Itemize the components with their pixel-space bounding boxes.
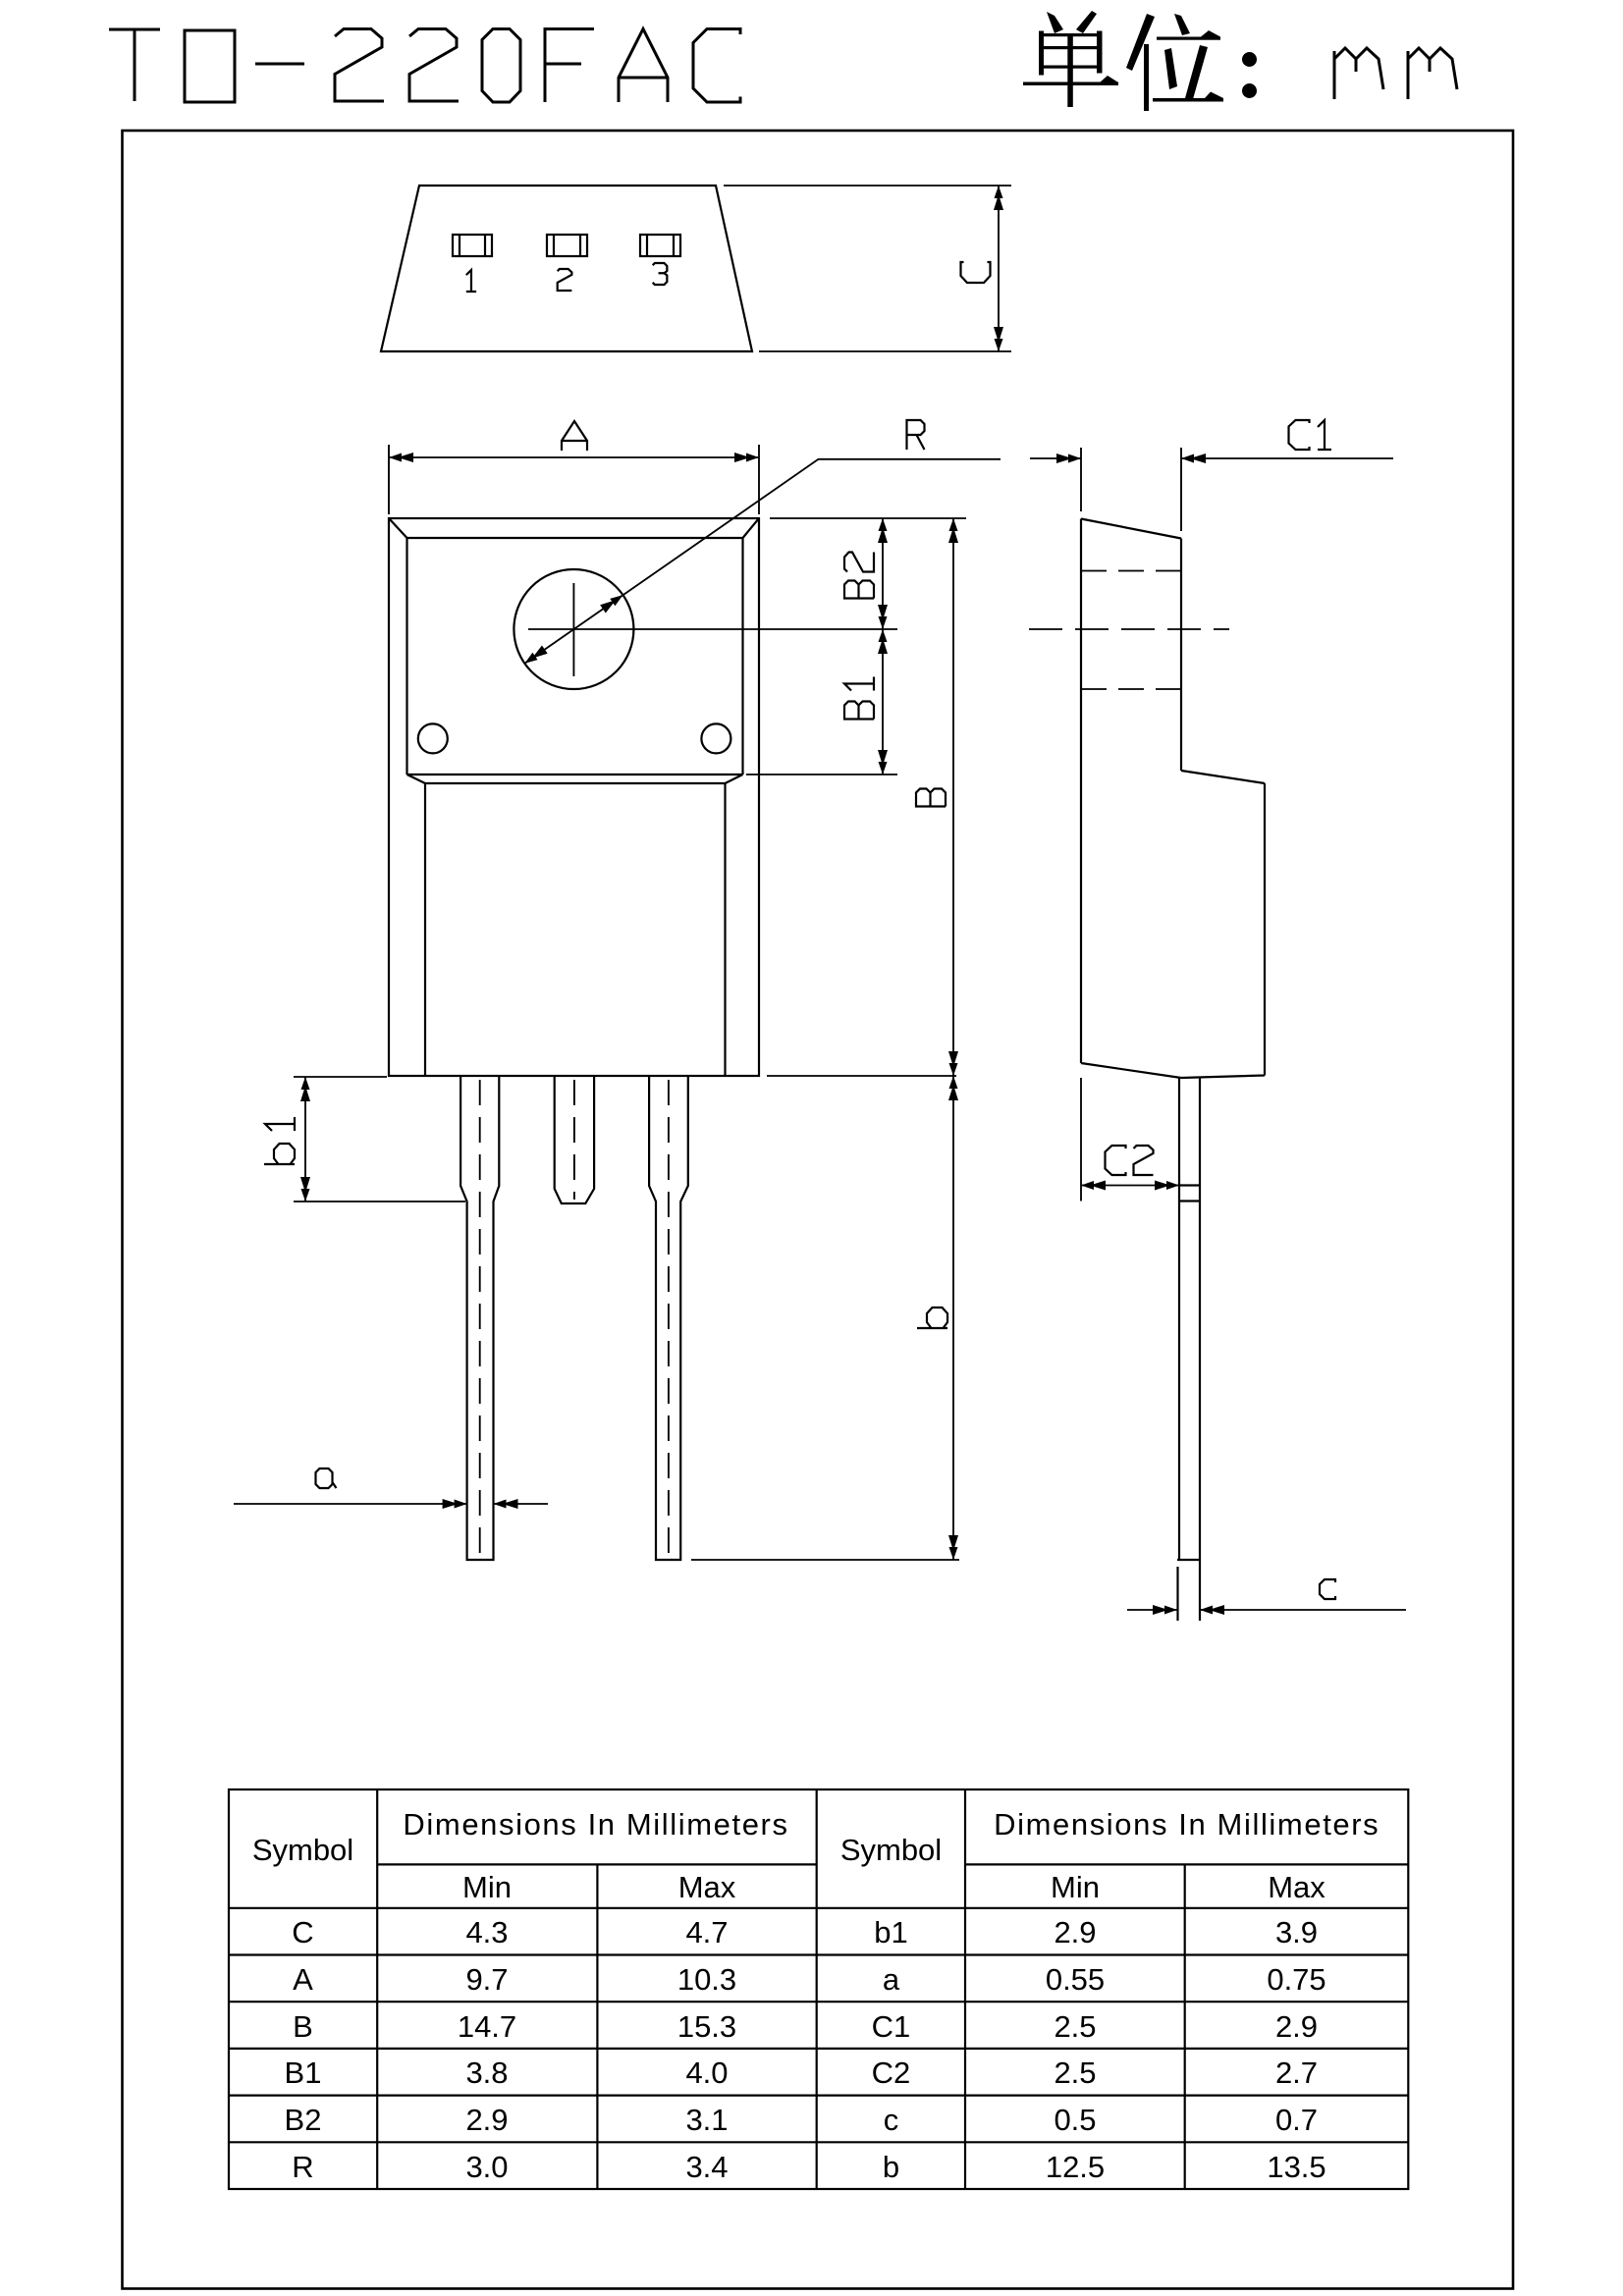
svg-text:9.7: 9.7 <box>465 1962 508 1997</box>
svg-text:R: R <box>292 2150 313 2184</box>
svg-text:B2: B2 <box>285 2103 322 2137</box>
svg-text:4.0: 4.0 <box>685 2056 728 2090</box>
svg-text:2.9: 2.9 <box>1275 2009 1318 2044</box>
svg-text:C2: C2 <box>872 2056 911 2090</box>
svg-text:Symbol: Symbol <box>252 1833 353 1867</box>
svg-text:Min: Min <box>462 1870 512 1904</box>
svg-text:C: C <box>292 1915 313 1949</box>
svg-text:Max: Max <box>678 1870 736 1904</box>
svg-text:Symbol: Symbol <box>840 1833 942 1867</box>
svg-text:2.7: 2.7 <box>1275 2056 1318 2090</box>
svg-text:Dimensions In Millimeters: Dimensions In Millimeters <box>994 1807 1380 1842</box>
svg-text:b: b <box>883 2150 899 2184</box>
svg-text:Max: Max <box>1268 1870 1325 1904</box>
svg-text:b1: b1 <box>874 1915 907 1949</box>
svg-text:B1: B1 <box>285 2056 322 2090</box>
svg-text:a: a <box>883 1962 900 1997</box>
svg-text:Dimensions In Millimeters: Dimensions In Millimeters <box>403 1807 788 1842</box>
svg-text:2.5: 2.5 <box>1054 2056 1096 2090</box>
svg-text:3.0: 3.0 <box>465 2150 508 2184</box>
svg-text:0.55: 0.55 <box>1046 1962 1105 1997</box>
svg-text:0.7: 0.7 <box>1275 2103 1318 2137</box>
svg-text:C1: C1 <box>872 2009 911 2044</box>
svg-text:Min: Min <box>1051 1870 1100 1904</box>
svg-text:4.3: 4.3 <box>465 1915 508 1949</box>
svg-text:4.7: 4.7 <box>685 1915 728 1949</box>
svg-text:14.7: 14.7 <box>458 2009 516 2044</box>
svg-text:3.8: 3.8 <box>465 2056 508 2090</box>
svg-text:B: B <box>293 2009 313 2044</box>
svg-text:c: c <box>884 2103 899 2137</box>
svg-text:2.5: 2.5 <box>1054 2009 1096 2044</box>
svg-text:A: A <box>293 1962 313 1997</box>
svg-text:12.5: 12.5 <box>1046 2150 1105 2184</box>
svg-text:2.9: 2.9 <box>465 2103 508 2137</box>
svg-text:15.3: 15.3 <box>677 2009 736 2044</box>
svg-text:2.9: 2.9 <box>1054 1915 1096 1949</box>
svg-text:13.5: 13.5 <box>1267 2150 1325 2184</box>
svg-text:3.9: 3.9 <box>1275 1915 1318 1949</box>
svg-text:3.1: 3.1 <box>685 2103 728 2137</box>
svg-text:0.75: 0.75 <box>1267 1962 1325 1997</box>
svg-text:10.3: 10.3 <box>677 1962 736 1997</box>
svg-text:3.4: 3.4 <box>685 2150 728 2184</box>
svg-text:0.5: 0.5 <box>1054 2103 1096 2137</box>
